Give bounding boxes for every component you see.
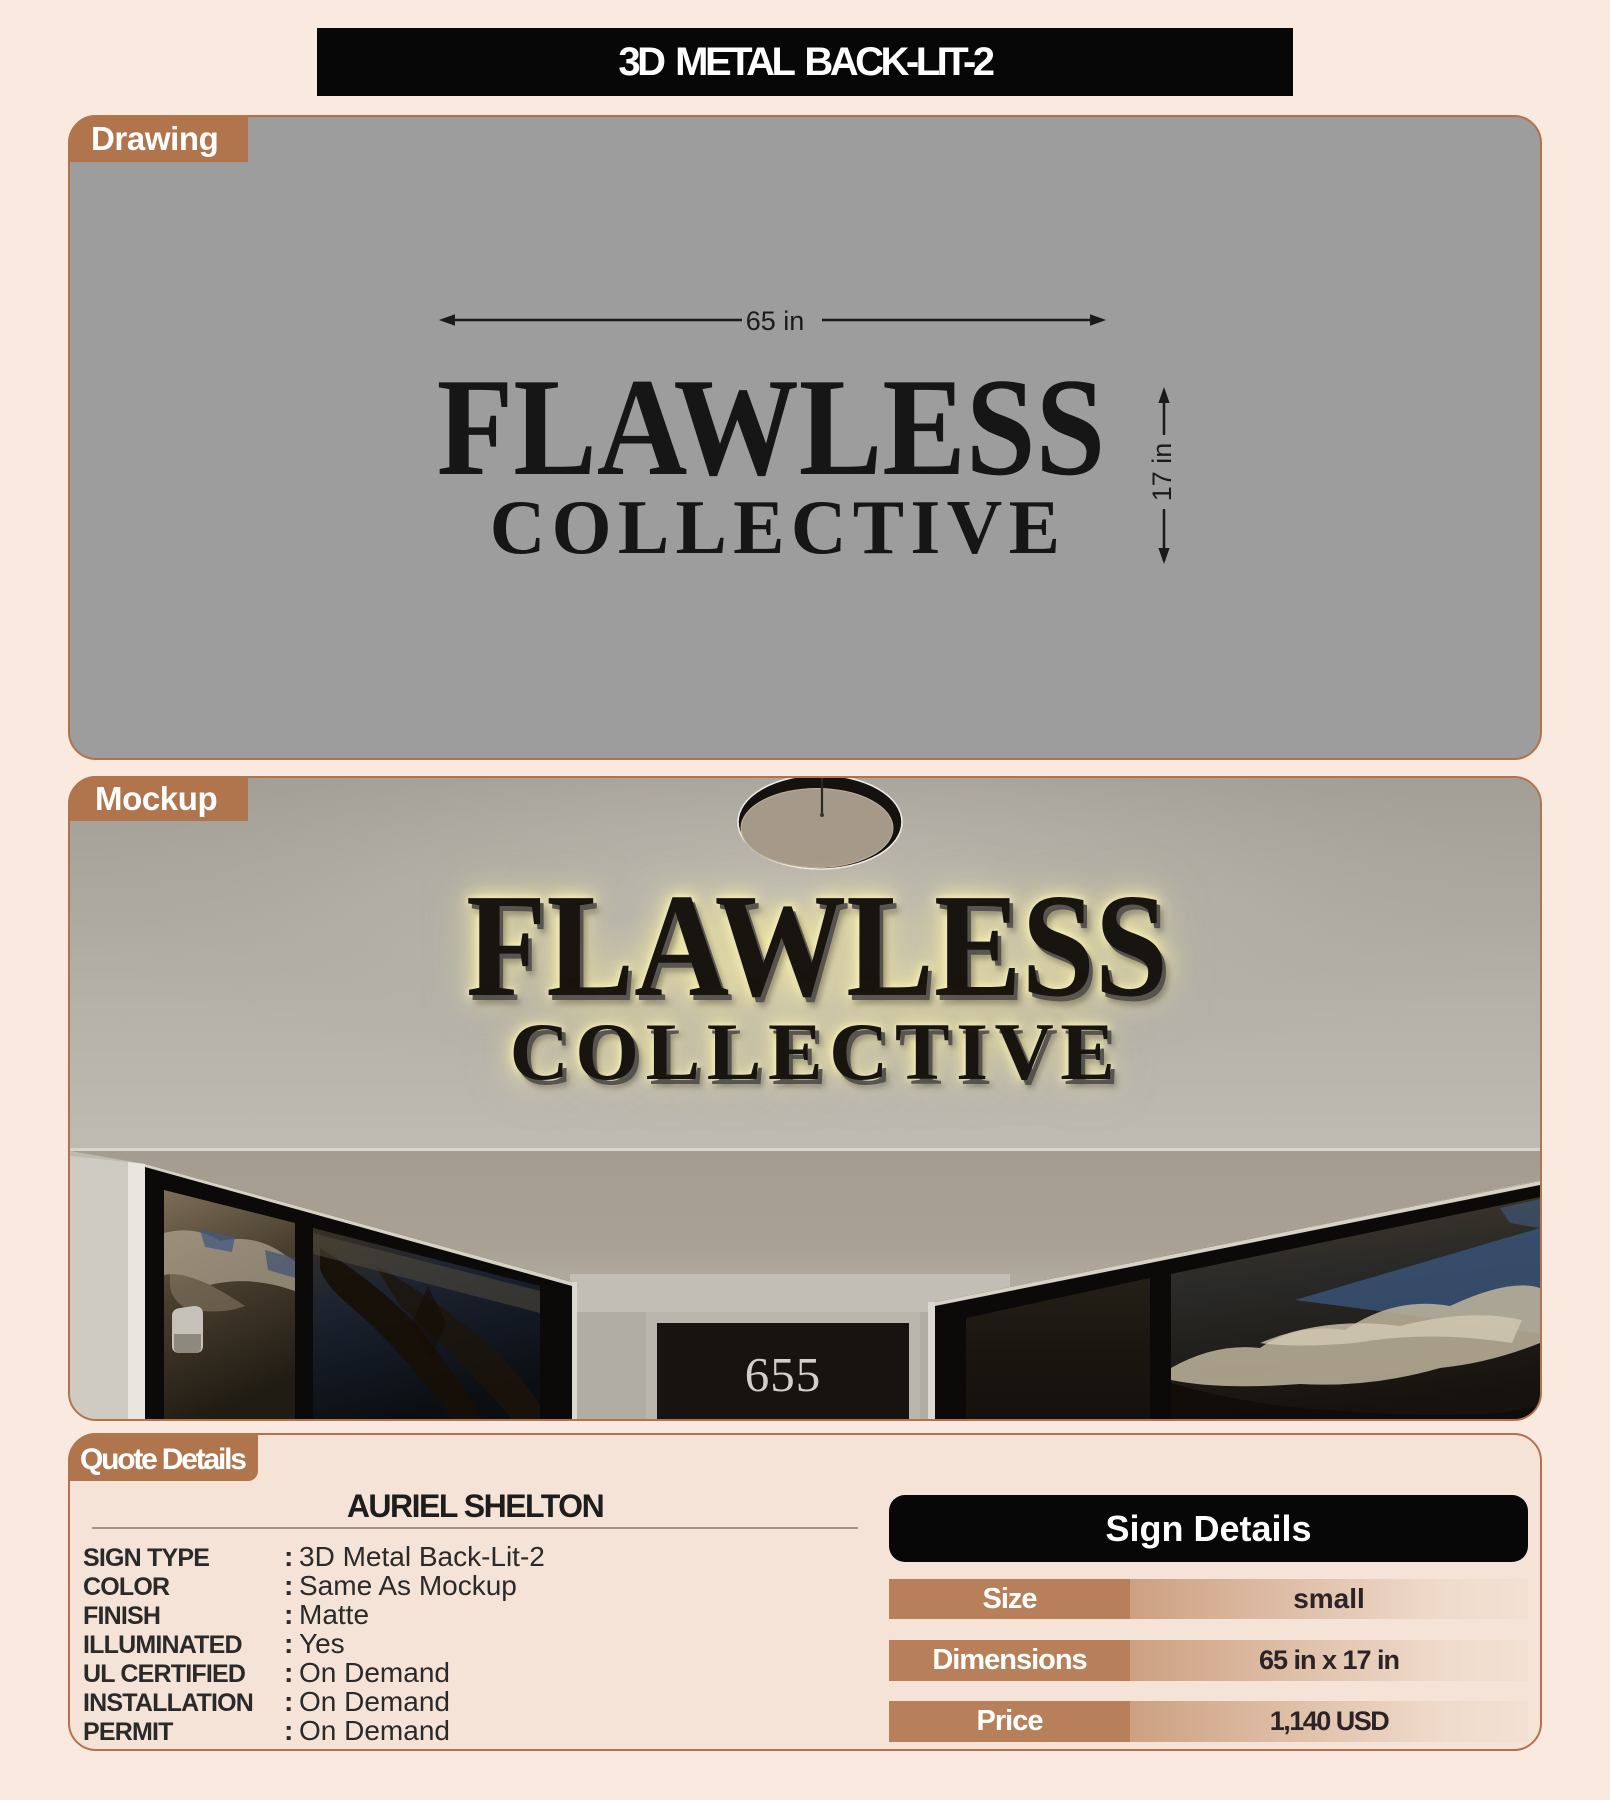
svg-text:65 in: 65 in [746, 306, 805, 336]
svg-text:655: 655 [745, 1347, 822, 1402]
